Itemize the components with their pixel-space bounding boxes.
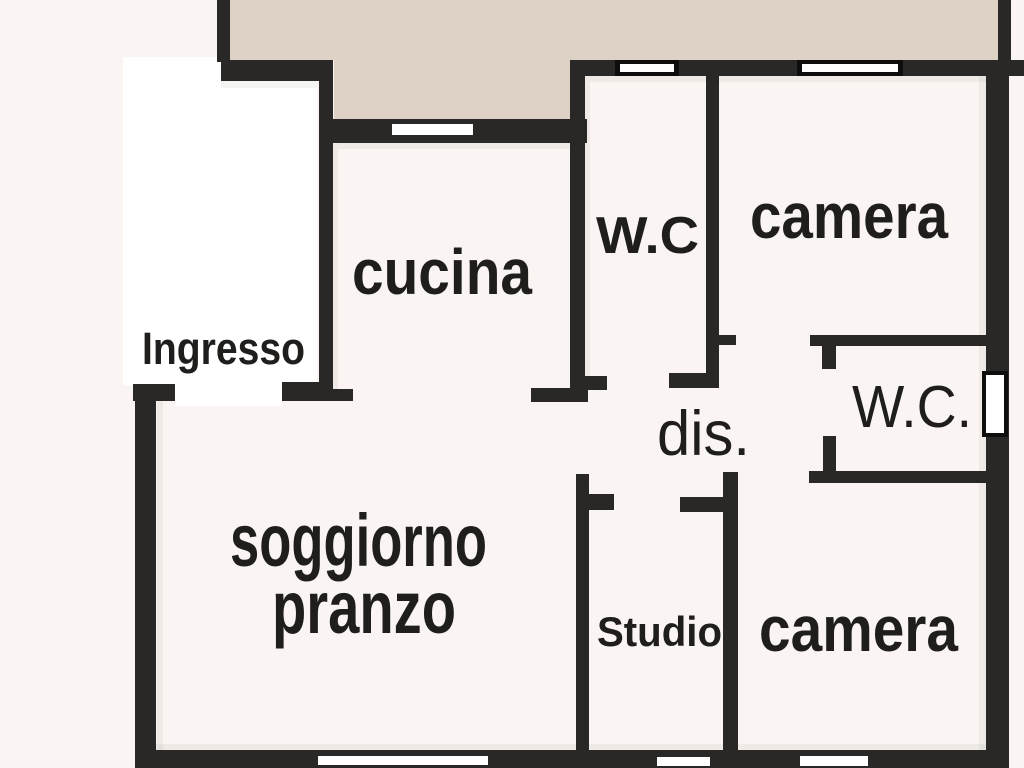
svg-text:W.C: W.C [596,207,699,265]
svg-text:Studio: Studio [597,608,722,655]
svg-text:camera: camera [750,180,948,252]
svg-text:camera: camera [759,593,958,665]
svg-text:Ingresso: Ingresso [142,323,305,374]
svg-text:pranzo: pranzo [272,566,456,649]
svg-text:cucina: cucina [352,236,532,308]
svg-text:W.C.: W.C. [852,374,972,440]
svg-text:dis.: dis. [657,399,750,469]
